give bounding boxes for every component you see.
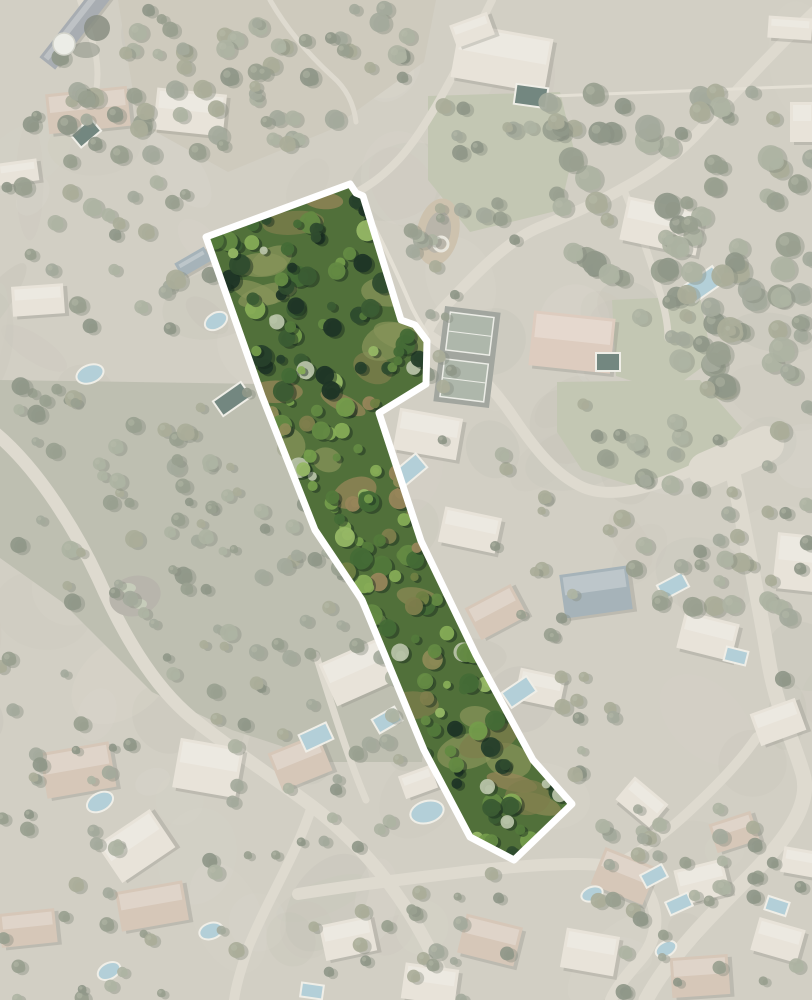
- aerial-orthophoto: [0, 0, 812, 1000]
- photo-canvas: [0, 0, 812, 1000]
- aerial-photo: [0, 0, 812, 1000]
